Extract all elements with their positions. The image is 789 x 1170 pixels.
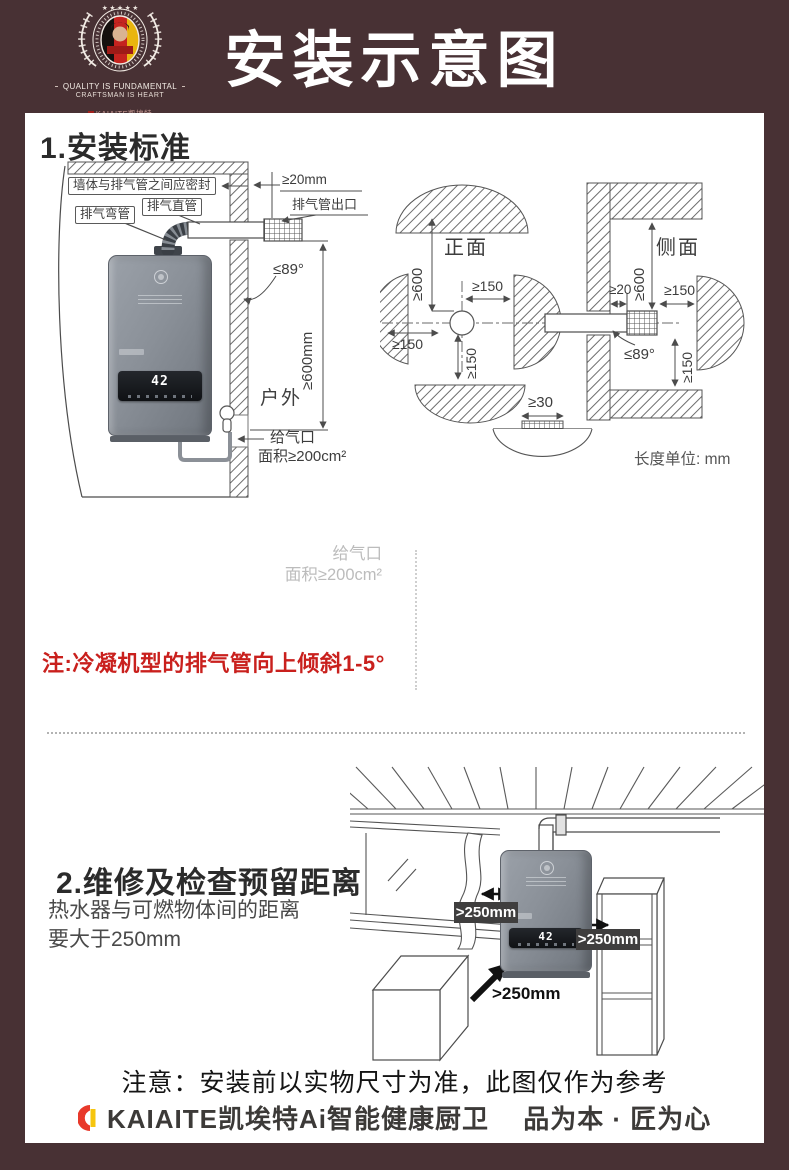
maintenance-clearance-diagram: 42 >250mm >250mm >250mm [350, 763, 764, 1063]
faded-line2: 面积≥200cm² [270, 565, 382, 586]
label-air-inlet: 给气口 [270, 430, 315, 447]
faded-air-inlet-note: 给气口 面积≥200cm² [270, 544, 382, 586]
heater2-base [502, 972, 590, 978]
heater-base [110, 436, 210, 442]
footer-brand: KAIAITE凯埃特Ai智能健康厨卫 [107, 1104, 489, 1134]
label-straight-pipe: 排气直管 [142, 198, 202, 216]
side-dim-bottom: ≥150 [680, 352, 695, 383]
temperature-readout-2: 42 [538, 930, 553, 943]
label-outlet: 排气管出口 [292, 198, 357, 212]
side-dim-gap: ≥20 [609, 283, 631, 298]
clearance-badge-right: >250mm [576, 929, 640, 950]
label-wall-seal: 墙体与排气管之间应密封 [68, 177, 216, 195]
side-dim-right: ≥150 [664, 283, 695, 298]
side-dim-angle: ≤89° [624, 347, 655, 364]
page-title: 安装示意图 [224, 10, 564, 99]
condensing-model-note: 注:冷凝机型的排气管向上倾斜1-5° [42, 646, 385, 678]
clearance-label-bottom: >250mm [492, 984, 561, 1004]
brand-flame-icon [78, 1104, 96, 1132]
vertical-dotted-mark [415, 550, 417, 690]
section-divider [47, 732, 745, 734]
clearance-badge-left: >250mm [454, 902, 518, 923]
heater-emblem-icon [154, 270, 168, 284]
faded-line1: 给气口 [270, 544, 382, 565]
installation-wall-diagram: 墙体与排气管之间应密封 排气直管 排气弯管 ≥20mm 排气管出口 ≤89° ≥… [30, 158, 390, 513]
label-angle-89: ≤89° [273, 262, 304, 279]
logo-motto-line2: CRAFTSMAN IS HEART [55, 92, 185, 99]
views-linework [380, 173, 765, 478]
front-dim-bottom: ≥150 [464, 348, 479, 379]
laurel-emblem-icon: ★ ★ ★ ★ ★ [60, 2, 180, 76]
heater-spec-text [138, 295, 183, 304]
heater-touch-keys [128, 395, 192, 398]
heater2-spec-text [526, 877, 566, 886]
logo-motto-line1: QUALITY IS FUNDAMENTAL [63, 82, 177, 91]
label-gap-20mm: ≥20mm [282, 173, 327, 188]
heater2-touch-keys [518, 943, 574, 946]
clearance-views-diagram: 正面 ≥600 ≥150 ≥150 ≥150 侧面 ≥600 ≥20 ≥150 … [380, 173, 765, 478]
temperature-readout: 42 [151, 374, 169, 389]
side-dim-top: ≥600 [632, 268, 649, 301]
section2-body-line1: 热水器与可燃物体间的距离 [48, 899, 300, 922]
label-outdoor: 户外 [260, 389, 302, 410]
footer-slogan: 品为本 · 匠为心 [523, 1104, 711, 1134]
label-air-area: 面积≥200cm² [258, 449, 346, 466]
heater2-emblem-icon [540, 861, 554, 875]
content-card: 1.安装标准 [25, 113, 764, 1143]
logo-motto: QUALITY IS FUNDAMENTAL [55, 82, 185, 91]
heater2-display: 42 [509, 928, 583, 948]
footer-notice: 注意：安装前以实物尺寸为准，此图仅作为参考 [25, 1063, 764, 1099]
footer-brand-line: KAIAITE凯埃特Ai智能健康厨卫 品为本 · 匠为心 [25, 1099, 764, 1136]
label-side-view: 侧面 [656, 237, 700, 259]
page: ★ ★ ★ ★ ★ [0, 0, 789, 1170]
floor-clearance-dim: ≥30 [528, 395, 553, 412]
section2-body-line2: 要大于250mm [48, 928, 181, 951]
heater-brand-mark [119, 349, 143, 355]
brand-logo: ★ ★ ★ ★ ★ [55, 2, 185, 119]
water-heater-illustration: 42 [108, 255, 212, 442]
label-front-view: 正面 [444, 237, 488, 259]
unit-note: 长度单位: mm [634, 451, 730, 468]
header: ★ ★ ★ ★ ★ [0, 0, 789, 113]
heater-display: 42 [118, 371, 202, 401]
label-height-600mm: ≥600mm [300, 332, 317, 390]
section2-body: 热水器与可燃物体间的距离 要大于250mm [48, 896, 300, 954]
heater-body: 42 [108, 255, 212, 436]
label-elbow-pipe: 排气弯管 [75, 206, 135, 224]
front-dim-top: ≥600 [410, 268, 427, 301]
svg-text:★ ★ ★ ★ ★: ★ ★ ★ ★ ★ [102, 4, 139, 12]
front-dim-left: ≥150 [392, 337, 423, 352]
front-dim-right: ≥150 [472, 279, 503, 294]
